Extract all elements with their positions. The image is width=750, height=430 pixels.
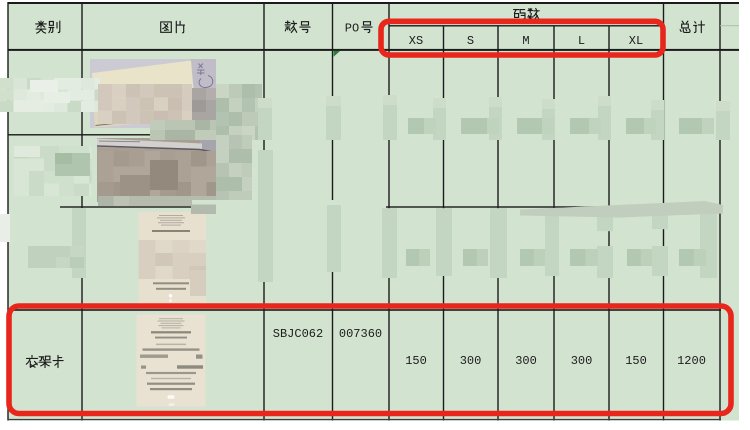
svg-text:150: 150: [405, 354, 427, 368]
svg-text:XS: XS: [409, 34, 423, 48]
svg-text:300: 300: [460, 354, 482, 368]
svg-text:300: 300: [515, 354, 537, 368]
svg-text:SBJC062: SBJC062: [273, 327, 323, 341]
svg-text:007360: 007360: [339, 327, 382, 341]
svg-text:L: L: [578, 34, 585, 48]
svg-text:S: S: [467, 34, 474, 48]
svg-text:150: 150: [625, 354, 647, 368]
svg-text:1200: 1200: [677, 354, 706, 368]
svg-text:300: 300: [571, 354, 593, 368]
svg-text:PO: PO: [345, 22, 359, 36]
svg-text:M: M: [522, 34, 529, 48]
svg-text:XL: XL: [629, 34, 643, 48]
